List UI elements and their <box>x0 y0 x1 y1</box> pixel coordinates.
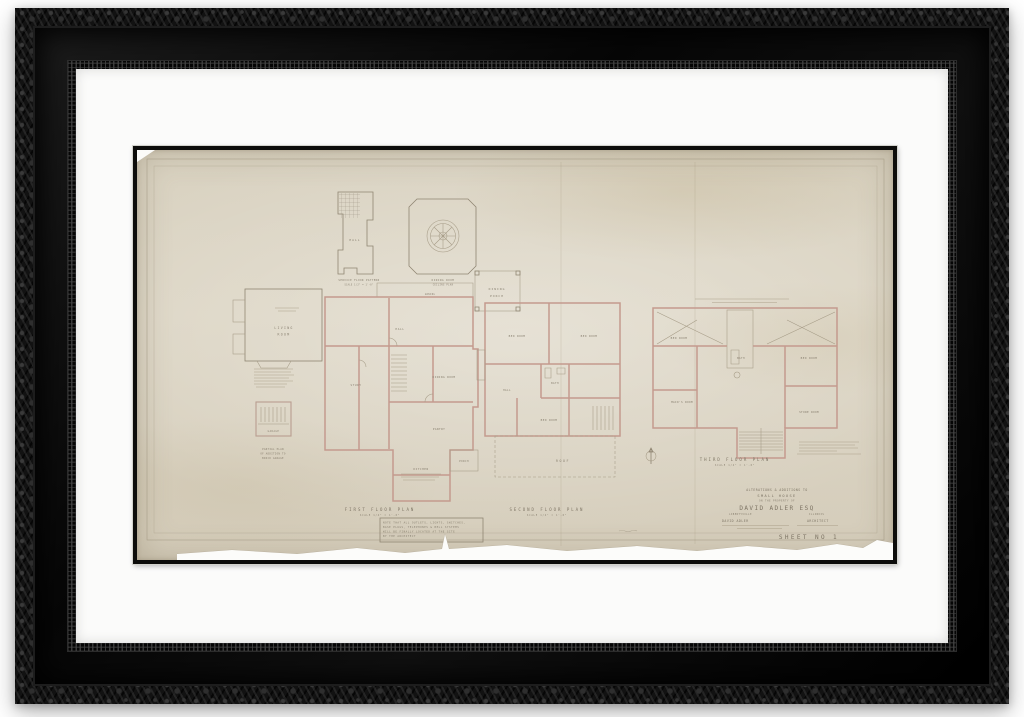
sheet-number: SHEET NO 1 <box>779 534 839 541</box>
porch-label: PORCH <box>459 459 469 463</box>
artwork-opening: HALL SERVICE FLOOR PATTERN SCALE 1/2" = … <box>133 146 897 564</box>
sheet-border-outer <box>147 159 884 540</box>
bath-fixtures <box>545 368 565 378</box>
ceiling-caption-2: CEILING PLAN <box>433 284 454 287</box>
paper-creases <box>561 162 695 546</box>
blueprint-paper: HALL SERVICE FLOOR PATTERN SCALE 1/2" = … <box>137 150 893 560</box>
first-floor-plan: AWNING HALL DINING ROOM STUDY PANTRY KIT… <box>325 283 483 542</box>
garage-stalls <box>258 407 289 424</box>
garage-addition-plan: GARAGE PARTIAL PLAN OF ADDITION TO BRICK… <box>254 369 294 460</box>
bath3-label: BATH <box>737 356 745 360</box>
second-floor-partitions <box>485 303 620 436</box>
first-floor-scale: SCALE 1/4" = 1'-0" <box>360 514 400 517</box>
hall-caption: SERVICE FLOOR PATTERN <box>338 278 379 282</box>
ceiling-rosette-petals <box>431 224 456 249</box>
title-line-2: SMALL HOUSE <box>757 494 796 498</box>
hall-label: HALL <box>395 327 404 331</box>
third-floor-stair <box>739 428 783 454</box>
floor-pattern-hatch <box>339 193 360 218</box>
pencil-annotation <box>619 530 637 532</box>
awning-label: AWNING <box>425 293 436 296</box>
second-floor-outline <box>485 303 620 436</box>
mat-board: HALL SERVICE FLOOR PATTERN SCALE 1/2" = … <box>76 69 948 643</box>
title-line-3: ON THE PROPERTY OF <box>759 499 795 503</box>
first-floor-partitions <box>325 298 473 475</box>
bed3-label-1: BED ROOM <box>671 336 688 340</box>
general-note-3: WILL BE FINALLY LOCATED AT THE SITE <box>383 530 455 534</box>
third-floor-outline <box>653 308 837 458</box>
general-note-2: BASE PLUGS, TELEPHONES & BELL SYSTEMS <box>383 525 459 529</box>
place-left: LIBERTYVILLE <box>729 512 752 516</box>
living-room-bay-1 <box>233 300 245 322</box>
frame-ornate-band: HALL SERVICE FLOOR PATTERN SCALE 1/2" = … <box>15 8 1009 704</box>
third-floor-scale: SCALE 1/4" = 1'-0" <box>715 464 755 467</box>
hall-caption-scale: SCALE 1/2" = 1'-0" <box>344 284 373 287</box>
general-note-1: NOTE THAT ALL OUTLETS, LIGHTS, SWITCHES, <box>383 521 465 525</box>
architect-address-lines <box>722 526 838 529</box>
garage-caption-1: PARTIAL PLAN <box>262 447 284 451</box>
living-room-label-1: LIVING <box>274 326 293 330</box>
pantry-label: PANTRY <box>433 427 446 431</box>
sheet-border-inner <box>154 166 877 533</box>
dining-porch-label-2: PORCH <box>490 294 504 298</box>
bed-room-label-2: BED ROOM <box>581 334 598 338</box>
study-label: STUDY <box>351 383 362 387</box>
blueprint-drawing: HALL SERVICE FLOOR PATTERN SCALE 1/2" = … <box>137 150 893 560</box>
ceiling-caption: DINING ROOM <box>432 278 455 282</box>
spec-note-lines <box>254 369 294 387</box>
place-right: ILLINOIS <box>809 512 824 516</box>
frame-cove-moulding: HALL SERVICE FLOOR PATTERN SCALE 1/2" = … <box>33 26 991 686</box>
title-line-1: ALTERATIONS & ADDITIONS TO <box>746 488 807 492</box>
revision-note-lines <box>797 442 861 454</box>
north-arrow-needle <box>649 448 653 464</box>
third-floor-fixtures <box>731 350 740 378</box>
dining-porch-label-1: DINING <box>489 287 506 291</box>
second-floor-title: SECOND FLOOR PLAN <box>510 507 585 512</box>
third-floor-top-note <box>695 299 789 303</box>
photo-backdrop: HALL SERVICE FLOOR PATTERN SCALE 1/2" = … <box>0 0 1024 717</box>
maids-room-label: MAID'S ROOM <box>671 400 693 404</box>
first-floor-stair <box>391 355 407 391</box>
living-room-bay-2 <box>233 334 245 354</box>
bed-room-label-1: BED ROOM <box>509 334 526 338</box>
living-room-terrace <box>257 361 291 368</box>
hall-room-label: HALL <box>349 238 360 242</box>
frame-beaded-lip: HALL SERVICE FLOOR PATTERN SCALE 1/2" = … <box>67 60 957 652</box>
garage-caption-3: BRICK GARAGE <box>262 456 284 460</box>
second-floor-plan: BED ROOM BED ROOM BATH HALL BED ROOM ROO… <box>477 303 620 517</box>
living-room-label-2: ROOM <box>278 333 291 337</box>
first-floor-title: FIRST FLOOR PLAN <box>345 507 416 512</box>
first-floor-door-swings <box>359 338 433 402</box>
roof-outline <box>495 436 615 477</box>
bed-room-label-3: BED ROOM <box>541 418 558 422</box>
porch-outline <box>475 271 520 311</box>
hall2-label: HALL <box>503 388 511 392</box>
architect-name: DAVID ADLER <box>722 519 749 523</box>
garage-caption-2: OF ADDITION TO <box>260 452 285 456</box>
hall-pattern-plan: HALL SERVICE FLOOR PATTERN SCALE 1/2" = … <box>338 192 380 287</box>
bed3-label-2: BED ROOM <box>801 356 818 360</box>
owner-name: DAVID ADLER ESQ <box>739 505 814 512</box>
second-floor-scale: SCALE 1/4" = 1'-0" <box>527 514 567 517</box>
living-room-wing: LIVING ROOM <box>233 289 322 368</box>
dining-ceiling-plan: DINING ROOM CEILING PLAN <box>409 199 476 287</box>
second-floor-stair <box>593 406 613 430</box>
bath-label: BATH <box>551 381 559 385</box>
dining-porch-plan: DINING PORCH <box>475 271 520 311</box>
living-room-outline <box>245 289 322 361</box>
living-room-note-lines <box>275 308 299 311</box>
roof-label: ROOF <box>556 459 570 463</box>
dining-room-label: DINING ROOM <box>433 375 456 379</box>
garage-room-label: GARAGE <box>268 430 280 433</box>
kitchen-label: KITCHEN <box>413 467 428 471</box>
third-floor-title: THIRD FLOOR PLAN <box>700 457 771 462</box>
store-room-label: STORE ROOM <box>799 410 819 414</box>
picture-frame: HALL SERVICE FLOOR PATTERN SCALE 1/2" = … <box>15 8 1009 704</box>
architect-title: ARCHITECT <box>807 519 829 523</box>
paper-corner-nick <box>137 150 155 162</box>
porch-columns <box>475 271 520 311</box>
general-note-4: BY THE ARCHITECT <box>383 534 416 538</box>
